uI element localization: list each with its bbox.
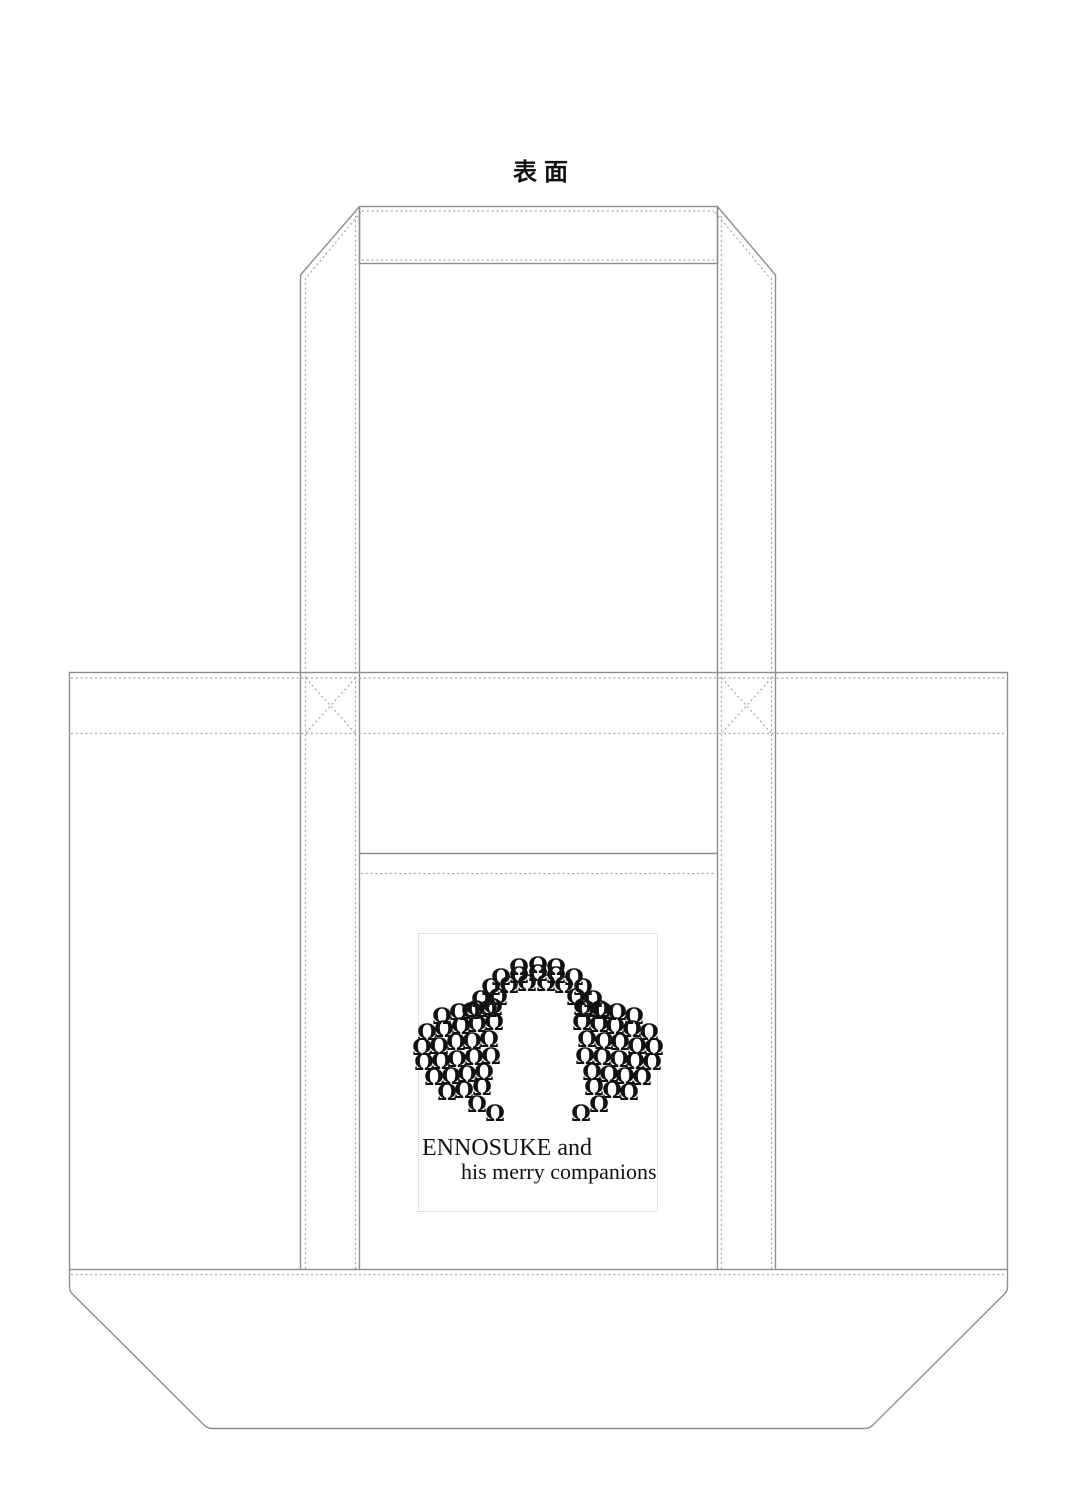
tote-bag-spec-sheet: 表面: [0, 0, 1088, 1504]
wig-figure: Ω: [589, 1094, 609, 1116]
logo-text-line2: his merry companions: [461, 1160, 657, 1184]
bottom-gusset: [70, 1270, 1008, 1429]
x-stitch-left: [306, 678, 356, 734]
x-stitch-right: [722, 678, 772, 734]
right-strap: [718, 207, 776, 1270]
top-hem-band: [360, 207, 718, 264]
logo-text-line1: ENNOSUKE and: [422, 1137, 657, 1160]
wig-figure: Ω: [571, 1103, 591, 1125]
wig-figure: Ω: [536, 973, 556, 995]
wig-figure: Ω: [467, 1094, 487, 1116]
pocket-seam: [360, 854, 718, 874]
logo-text: ENNOSUKE and his merry companions: [422, 1137, 657, 1184]
wig-figure: Ω: [517, 973, 537, 995]
tote-bag-diagram: [0, 0, 1088, 1504]
wig-figure: Ω: [619, 1082, 639, 1104]
print-area: ΩΩΩΩΩΩΩΩΩΩΩΩΩΩΩΩΩΩΩΩΩΩΩΩΩΩΩΩΩΩΩΩΩΩΩΩΩΩΩΩ…: [418, 933, 658, 1212]
left-strap: [301, 207, 360, 1270]
right-strap-fold: [715, 207, 776, 279]
wig-figure: Ω: [485, 1103, 505, 1125]
left-strap-fold: [301, 207, 362, 279]
